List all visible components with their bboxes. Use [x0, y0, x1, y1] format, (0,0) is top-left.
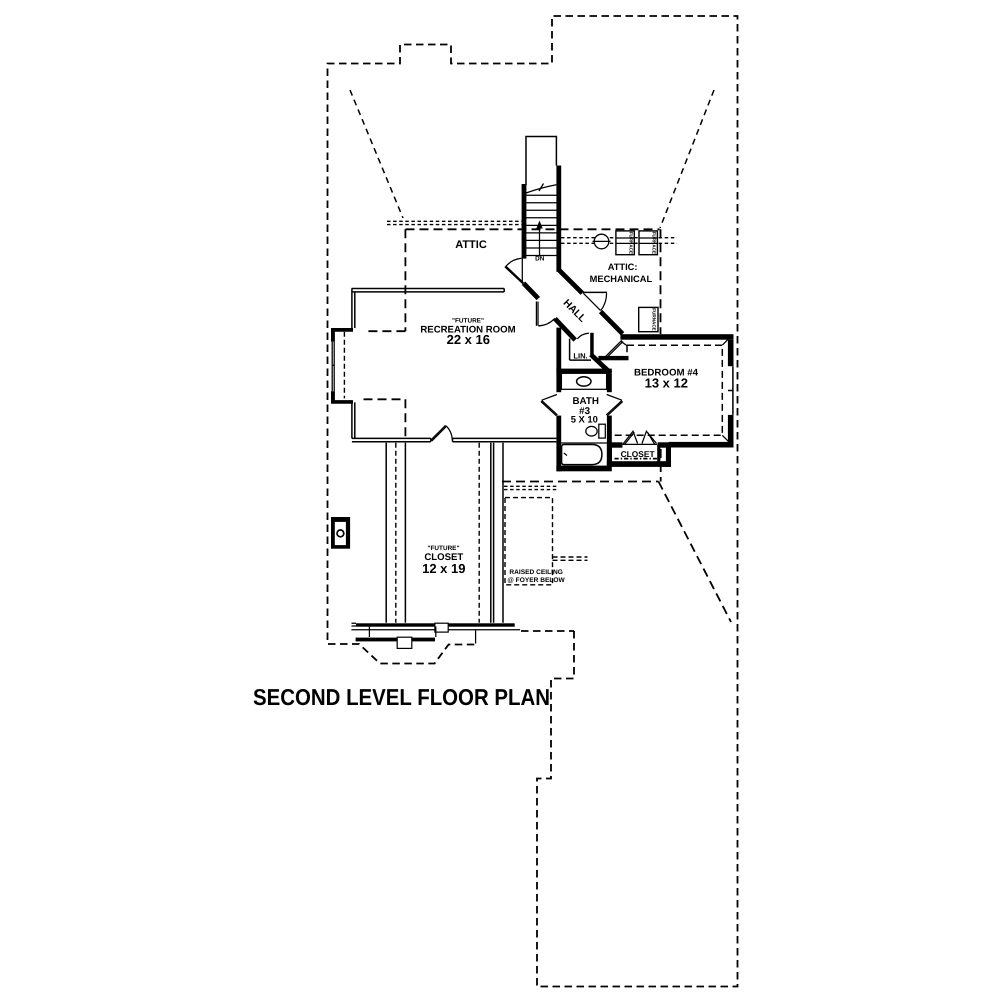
- svg-text:DN: DN: [535, 256, 545, 263]
- svg-text:SECOND LEVEL FLOOR PLAN: SECOND LEVEL FLOOR PLAN: [253, 684, 550, 710]
- svg-text:FURNACE: FURNACE: [629, 232, 634, 254]
- svg-text:LIN.: LIN.: [573, 351, 587, 360]
- svg-text:FURNACE: FURNACE: [652, 308, 657, 330]
- svg-text:FURNACE: FURNACE: [652, 232, 657, 254]
- svg-text:ATTIC: ATTIC: [455, 239, 487, 251]
- svg-text:22 x 16: 22 x 16: [447, 332, 490, 347]
- svg-text:12 x 19: 12 x 19: [422, 561, 465, 576]
- svg-text:5 X 10: 5 X 10: [571, 413, 598, 424]
- svg-text:ATTIC:: ATTIC:: [608, 262, 638, 272]
- svg-text:"FUTURE": "FUTURE": [452, 317, 484, 324]
- svg-text:MECHANICAL: MECHANICAL: [590, 274, 653, 284]
- svg-text:@ FOYER BELOW: @ FOYER BELOW: [507, 577, 565, 584]
- svg-text:RAISED CEILING: RAISED CEILING: [509, 569, 563, 576]
- svg-text:CLOSET: CLOSET: [621, 449, 656, 459]
- svg-text:13 x 12: 13 x 12: [645, 376, 688, 391]
- svg-text:"FUTURE": "FUTURE": [428, 545, 460, 552]
